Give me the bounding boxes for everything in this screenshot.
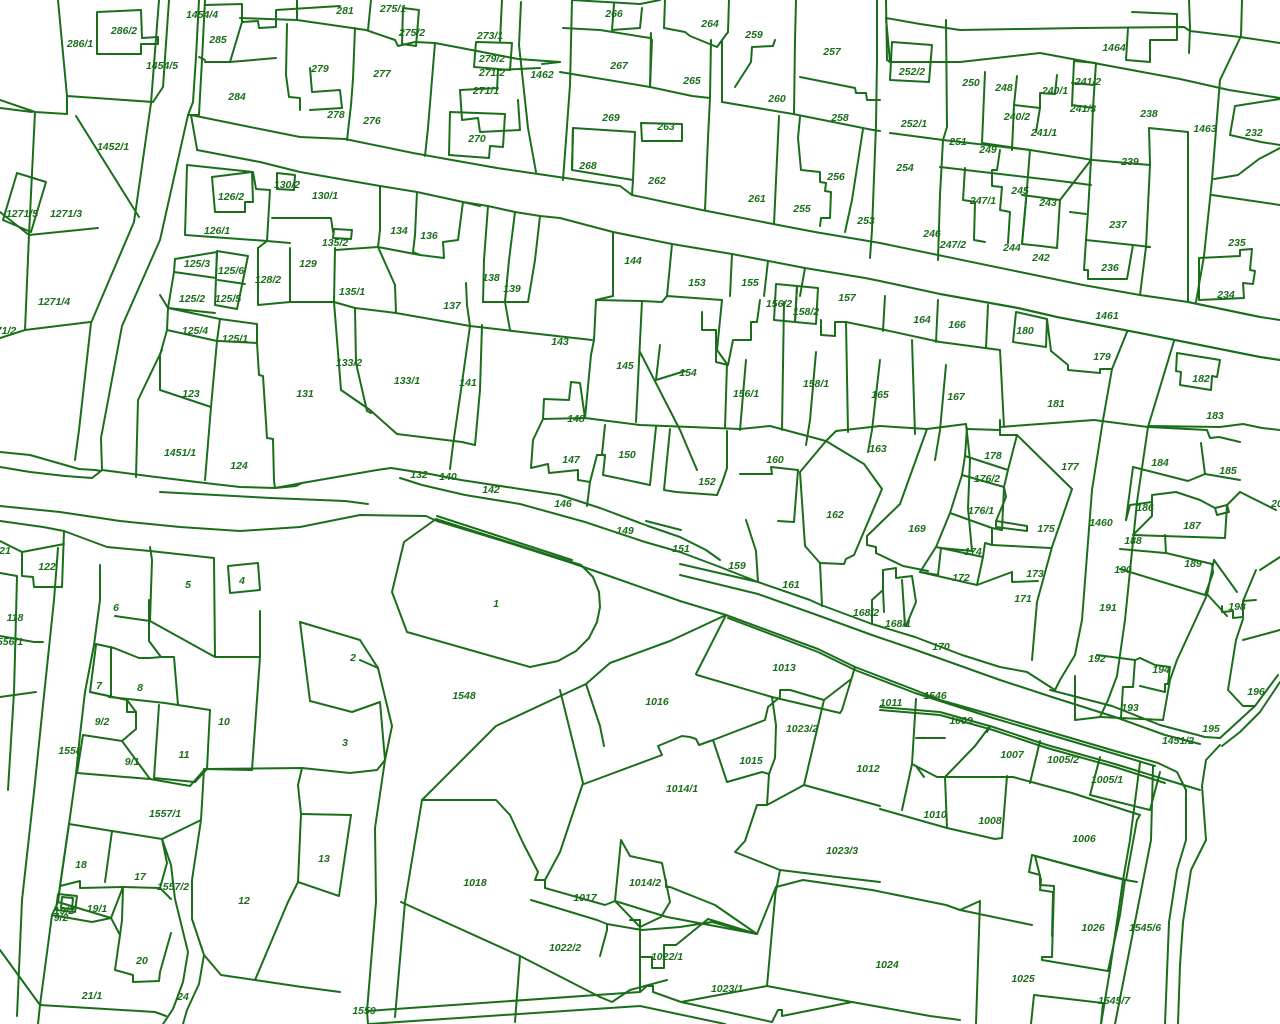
svg-text:176/2: 176/2 [974,473,1000,485]
svg-text:183: 183 [1206,410,1224,422]
svg-text:248: 248 [994,82,1013,94]
svg-text:189: 189 [1184,558,1202,570]
svg-text:268: 268 [578,160,597,172]
svg-text:196: 196 [1247,686,1265,698]
svg-text:139: 139 [503,283,521,295]
svg-text:146: 146 [554,498,572,510]
svg-text:1271/5: 1271/5 [6,208,38,220]
svg-text:262: 262 [647,175,666,187]
svg-text:166: 166 [948,319,966,331]
svg-text:1013: 1013 [772,662,796,674]
svg-text:145: 145 [616,360,634,372]
svg-text:20: 20 [135,955,148,967]
svg-text:1454/4: 1454/4 [186,9,218,21]
svg-text:150: 150 [618,449,636,461]
svg-text:1006: 1006 [1072,833,1096,845]
svg-text:240/1: 240/1 [1041,85,1068,97]
svg-text:157: 157 [838,292,857,304]
svg-text:255: 255 [792,203,811,215]
svg-text:1271/3: 1271/3 [50,208,82,220]
svg-text:153: 153 [688,277,706,289]
svg-text:152: 152 [698,476,716,488]
svg-text:1023/3: 1023/3 [826,845,858,857]
svg-text:71/2: 71/2 [0,325,16,337]
svg-text:182: 182 [1192,373,1210,385]
svg-text:164: 164 [913,314,931,326]
svg-text:1557/2: 1557/2 [157,881,189,893]
svg-text:254: 254 [895,162,914,174]
svg-text:1454/5: 1454/5 [146,60,178,72]
svg-text:193: 193 [1121,702,1139,714]
svg-text:144: 144 [624,255,642,267]
svg-text:181: 181 [1047,398,1065,410]
svg-text:239: 239 [1120,156,1139,168]
svg-text:1023/2: 1023/2 [786,723,818,735]
svg-text:1: 1 [493,598,499,610]
svg-text:147: 147 [562,454,581,466]
svg-text:21: 21 [0,545,11,557]
svg-text:252/2: 252/2 [898,66,925,78]
svg-text:125/1: 125/1 [222,333,248,345]
svg-text:4: 4 [238,575,245,587]
svg-text:161: 161 [782,579,800,591]
svg-text:126/1: 126/1 [204,225,230,237]
svg-text:175: 175 [1037,523,1055,535]
svg-text:244: 244 [1002,242,1021,254]
svg-text:235: 235 [1227,237,1246,249]
svg-text:156/1: 156/1 [733,388,759,400]
svg-text:24: 24 [176,991,189,1003]
svg-text:155: 155 [741,277,759,289]
svg-text:1559: 1559 [352,1005,376,1017]
svg-text:286/1: 286/1 [66,38,93,50]
svg-text:277: 277 [372,68,392,80]
svg-text:133/1: 133/1 [394,375,420,387]
svg-text:261: 261 [747,193,766,205]
svg-text:242: 242 [1031,252,1050,264]
svg-text:130/1: 130/1 [312,190,338,202]
svg-text:265: 265 [682,75,701,87]
svg-text:118: 118 [7,612,24,624]
svg-text:259: 259 [744,29,763,41]
svg-text:172: 172 [952,572,970,584]
svg-text:270: 270 [467,133,486,145]
svg-text:188: 188 [1124,535,1142,547]
svg-text:252/1: 252/1 [900,118,927,130]
svg-text:148: 148 [567,413,585,425]
svg-text:165: 165 [871,389,889,401]
svg-text:1557/1: 1557/1 [149,808,181,820]
svg-text:245: 245 [1010,185,1029,197]
svg-text:160: 160 [766,454,784,466]
svg-text:184: 184 [1151,457,1169,469]
svg-text:123: 123 [182,388,200,400]
svg-text:187: 187 [1183,520,1202,532]
svg-text:1558: 1558 [58,745,82,757]
svg-text:241/2: 241/2 [1074,76,1101,88]
svg-text:126/2: 126/2 [218,191,244,203]
svg-text:232: 232 [1244,127,1263,139]
svg-text:1026: 1026 [1081,922,1105,934]
svg-text:1545/7: 1545/7 [1098,995,1131,1007]
svg-text:257: 257 [822,46,842,58]
svg-text:1460: 1460 [1089,517,1113,529]
svg-text:135/2: 135/2 [322,237,348,249]
svg-text:266: 266 [604,8,623,20]
svg-text:191: 191 [1099,602,1117,614]
svg-text:278: 278 [326,109,345,121]
svg-text:133/2: 133/2 [336,357,362,369]
svg-text:1014/2: 1014/2 [629,877,661,889]
svg-text:13: 13 [318,853,330,865]
svg-text:125/2: 125/2 [179,293,205,305]
svg-text:249: 249 [978,144,997,156]
svg-text:195: 195 [1202,723,1220,735]
svg-text:1462: 1462 [530,69,554,81]
svg-text:267: 267 [609,60,629,72]
svg-text:190: 190 [1114,564,1132,576]
svg-text:1271/4: 1271/4 [38,296,70,308]
svg-text:185: 185 [1219,465,1237,477]
svg-text:5: 5 [185,579,191,591]
svg-text:131: 131 [296,388,314,400]
svg-text:125/5: 125/5 [215,293,241,305]
svg-text:247/1: 247/1 [969,195,996,207]
svg-text:281: 281 [335,5,354,17]
svg-text:163: 163 [869,443,887,455]
svg-text:6: 6 [113,602,119,614]
svg-text:1007: 1007 [1000,749,1025,761]
svg-text:173: 173 [1026,568,1044,580]
svg-text:1009: 1009 [949,715,973,727]
svg-text:1018: 1018 [463,877,487,889]
svg-text:1024: 1024 [875,959,899,971]
svg-text:271/1: 271/1 [472,85,499,97]
svg-text:3: 3 [342,737,348,749]
svg-text:194: 194 [1152,664,1170,676]
svg-text:237: 237 [1108,219,1128,231]
svg-text:1464: 1464 [1102,42,1126,54]
svg-text:169: 169 [908,523,926,535]
svg-text:1011: 1011 [880,697,903,709]
svg-text:1463: 1463 [1193,123,1217,135]
svg-text:1548: 1548 [452,690,476,702]
svg-text:129: 129 [299,258,317,270]
svg-text:241/1: 241/1 [1030,127,1057,139]
svg-text:174: 174 [964,546,982,558]
svg-text:9/2: 9/2 [95,716,110,728]
svg-text:284: 284 [227,91,246,103]
svg-text:198: 198 [1228,601,1246,613]
svg-text:1451/1: 1451/1 [164,447,196,459]
svg-text:135/1: 135/1 [339,286,365,298]
svg-text:1005/2: 1005/2 [1047,754,1079,766]
svg-text:256: 256 [826,171,845,183]
svg-text:1016: 1016 [645,696,669,708]
svg-text:132: 132 [410,469,428,481]
svg-text:1451/2: 1451/2 [1162,735,1194,747]
svg-text:122: 122 [38,561,56,573]
svg-text:279/2: 279/2 [478,53,505,65]
svg-text:154: 154 [679,367,697,379]
svg-text:134: 134 [390,225,408,237]
svg-text:186: 186 [1136,502,1154,514]
svg-text:2: 2 [349,652,356,664]
svg-text:279: 279 [310,63,329,75]
svg-text:10: 10 [218,716,230,728]
svg-text:263: 263 [656,121,675,133]
svg-text:138: 138 [482,272,500,284]
svg-text:125/3: 125/3 [184,258,210,270]
svg-text:240/2: 240/2 [1003,111,1030,123]
svg-text:9/1: 9/1 [125,756,140,768]
svg-text:180: 180 [1016,325,1034,337]
svg-text:124: 124 [230,460,248,472]
svg-text:246: 246 [922,228,941,240]
svg-text:158/1: 158/1 [803,378,829,390]
svg-text:1008: 1008 [978,815,1002,827]
svg-text:168/1: 168/1 [885,618,911,630]
svg-text:247/2: 247/2 [939,239,966,251]
svg-text:125/4: 125/4 [182,325,208,337]
svg-text:179: 179 [1093,351,1111,363]
svg-text:1023/1: 1023/1 [711,983,743,995]
svg-text:1010: 1010 [923,809,947,821]
svg-text:1546: 1546 [923,690,947,702]
svg-text:260: 260 [767,93,786,105]
svg-text:251: 251 [948,136,967,148]
svg-text:1022/2: 1022/2 [549,942,581,954]
svg-text:1545/6: 1545/6 [1129,922,1161,934]
svg-text:141: 141 [459,377,477,389]
svg-text:271/2: 271/2 [478,67,505,79]
svg-text:170: 170 [932,641,950,653]
svg-text:238: 238 [1139,108,1158,120]
svg-text:136: 136 [420,230,438,242]
svg-text:275/1: 275/1 [379,3,406,15]
svg-text:171: 171 [1014,593,1032,605]
svg-text:253: 253 [856,215,875,227]
svg-text:556/1: 556/1 [0,636,23,648]
svg-text:137: 137 [443,300,462,312]
svg-text:1012: 1012 [856,763,880,775]
svg-text:9/2: 9/2 [54,912,69,924]
svg-text:8: 8 [137,682,143,694]
svg-text:140: 140 [439,471,457,483]
svg-text:151: 151 [672,543,690,555]
svg-text:11: 11 [179,749,190,761]
svg-text:273/1: 273/1 [476,30,503,42]
svg-text:128/2: 128/2 [255,274,281,286]
svg-text:143: 143 [551,336,569,348]
svg-text:177: 177 [1061,461,1080,473]
svg-text:142: 142 [482,484,500,496]
svg-text:285: 285 [208,34,227,46]
svg-text:12: 12 [238,895,250,907]
svg-text:167: 167 [947,391,966,403]
svg-text:234: 234 [1216,289,1235,301]
svg-text:168/2: 168/2 [853,607,879,619]
svg-text:17: 17 [134,871,147,883]
svg-text:236: 236 [1100,262,1119,274]
svg-text:158/2: 158/2 [793,306,819,318]
svg-text:1017: 1017 [573,892,598,904]
svg-text:21/1: 21/1 [81,990,103,1002]
svg-text:276: 276 [362,115,381,127]
svg-text:159: 159 [728,560,746,572]
svg-text:192: 192 [1088,653,1106,665]
svg-text:1014/1: 1014/1 [666,783,698,795]
svg-text:250: 250 [961,77,980,89]
svg-text:1015: 1015 [739,755,763,767]
svg-text:20: 20 [1270,498,1280,510]
svg-text:1005/1: 1005/1 [1091,774,1123,786]
svg-text:125/6: 125/6 [218,265,244,277]
svg-text:156/2: 156/2 [766,298,792,310]
svg-text:258: 258 [830,112,849,124]
svg-text:162: 162 [826,509,844,521]
svg-text:243: 243 [1038,197,1057,209]
svg-text:178: 178 [984,450,1002,462]
svg-text:1452/1: 1452/1 [97,141,129,153]
svg-text:286/2: 286/2 [110,25,137,37]
svg-text:1022/1: 1022/1 [651,951,683,963]
svg-text:241/3: 241/3 [1069,103,1096,115]
svg-text:149: 149 [616,525,634,537]
svg-text:130/2: 130/2 [274,179,300,191]
svg-text:1461: 1461 [1095,310,1119,322]
svg-text:275/2: 275/2 [398,27,425,39]
svg-text:1025: 1025 [1011,973,1035,985]
svg-text:264: 264 [700,18,719,30]
svg-text:269: 269 [601,112,620,124]
svg-text:19/1: 19/1 [87,903,108,915]
svg-text:176/1: 176/1 [968,505,994,517]
svg-text:18: 18 [75,859,87,871]
